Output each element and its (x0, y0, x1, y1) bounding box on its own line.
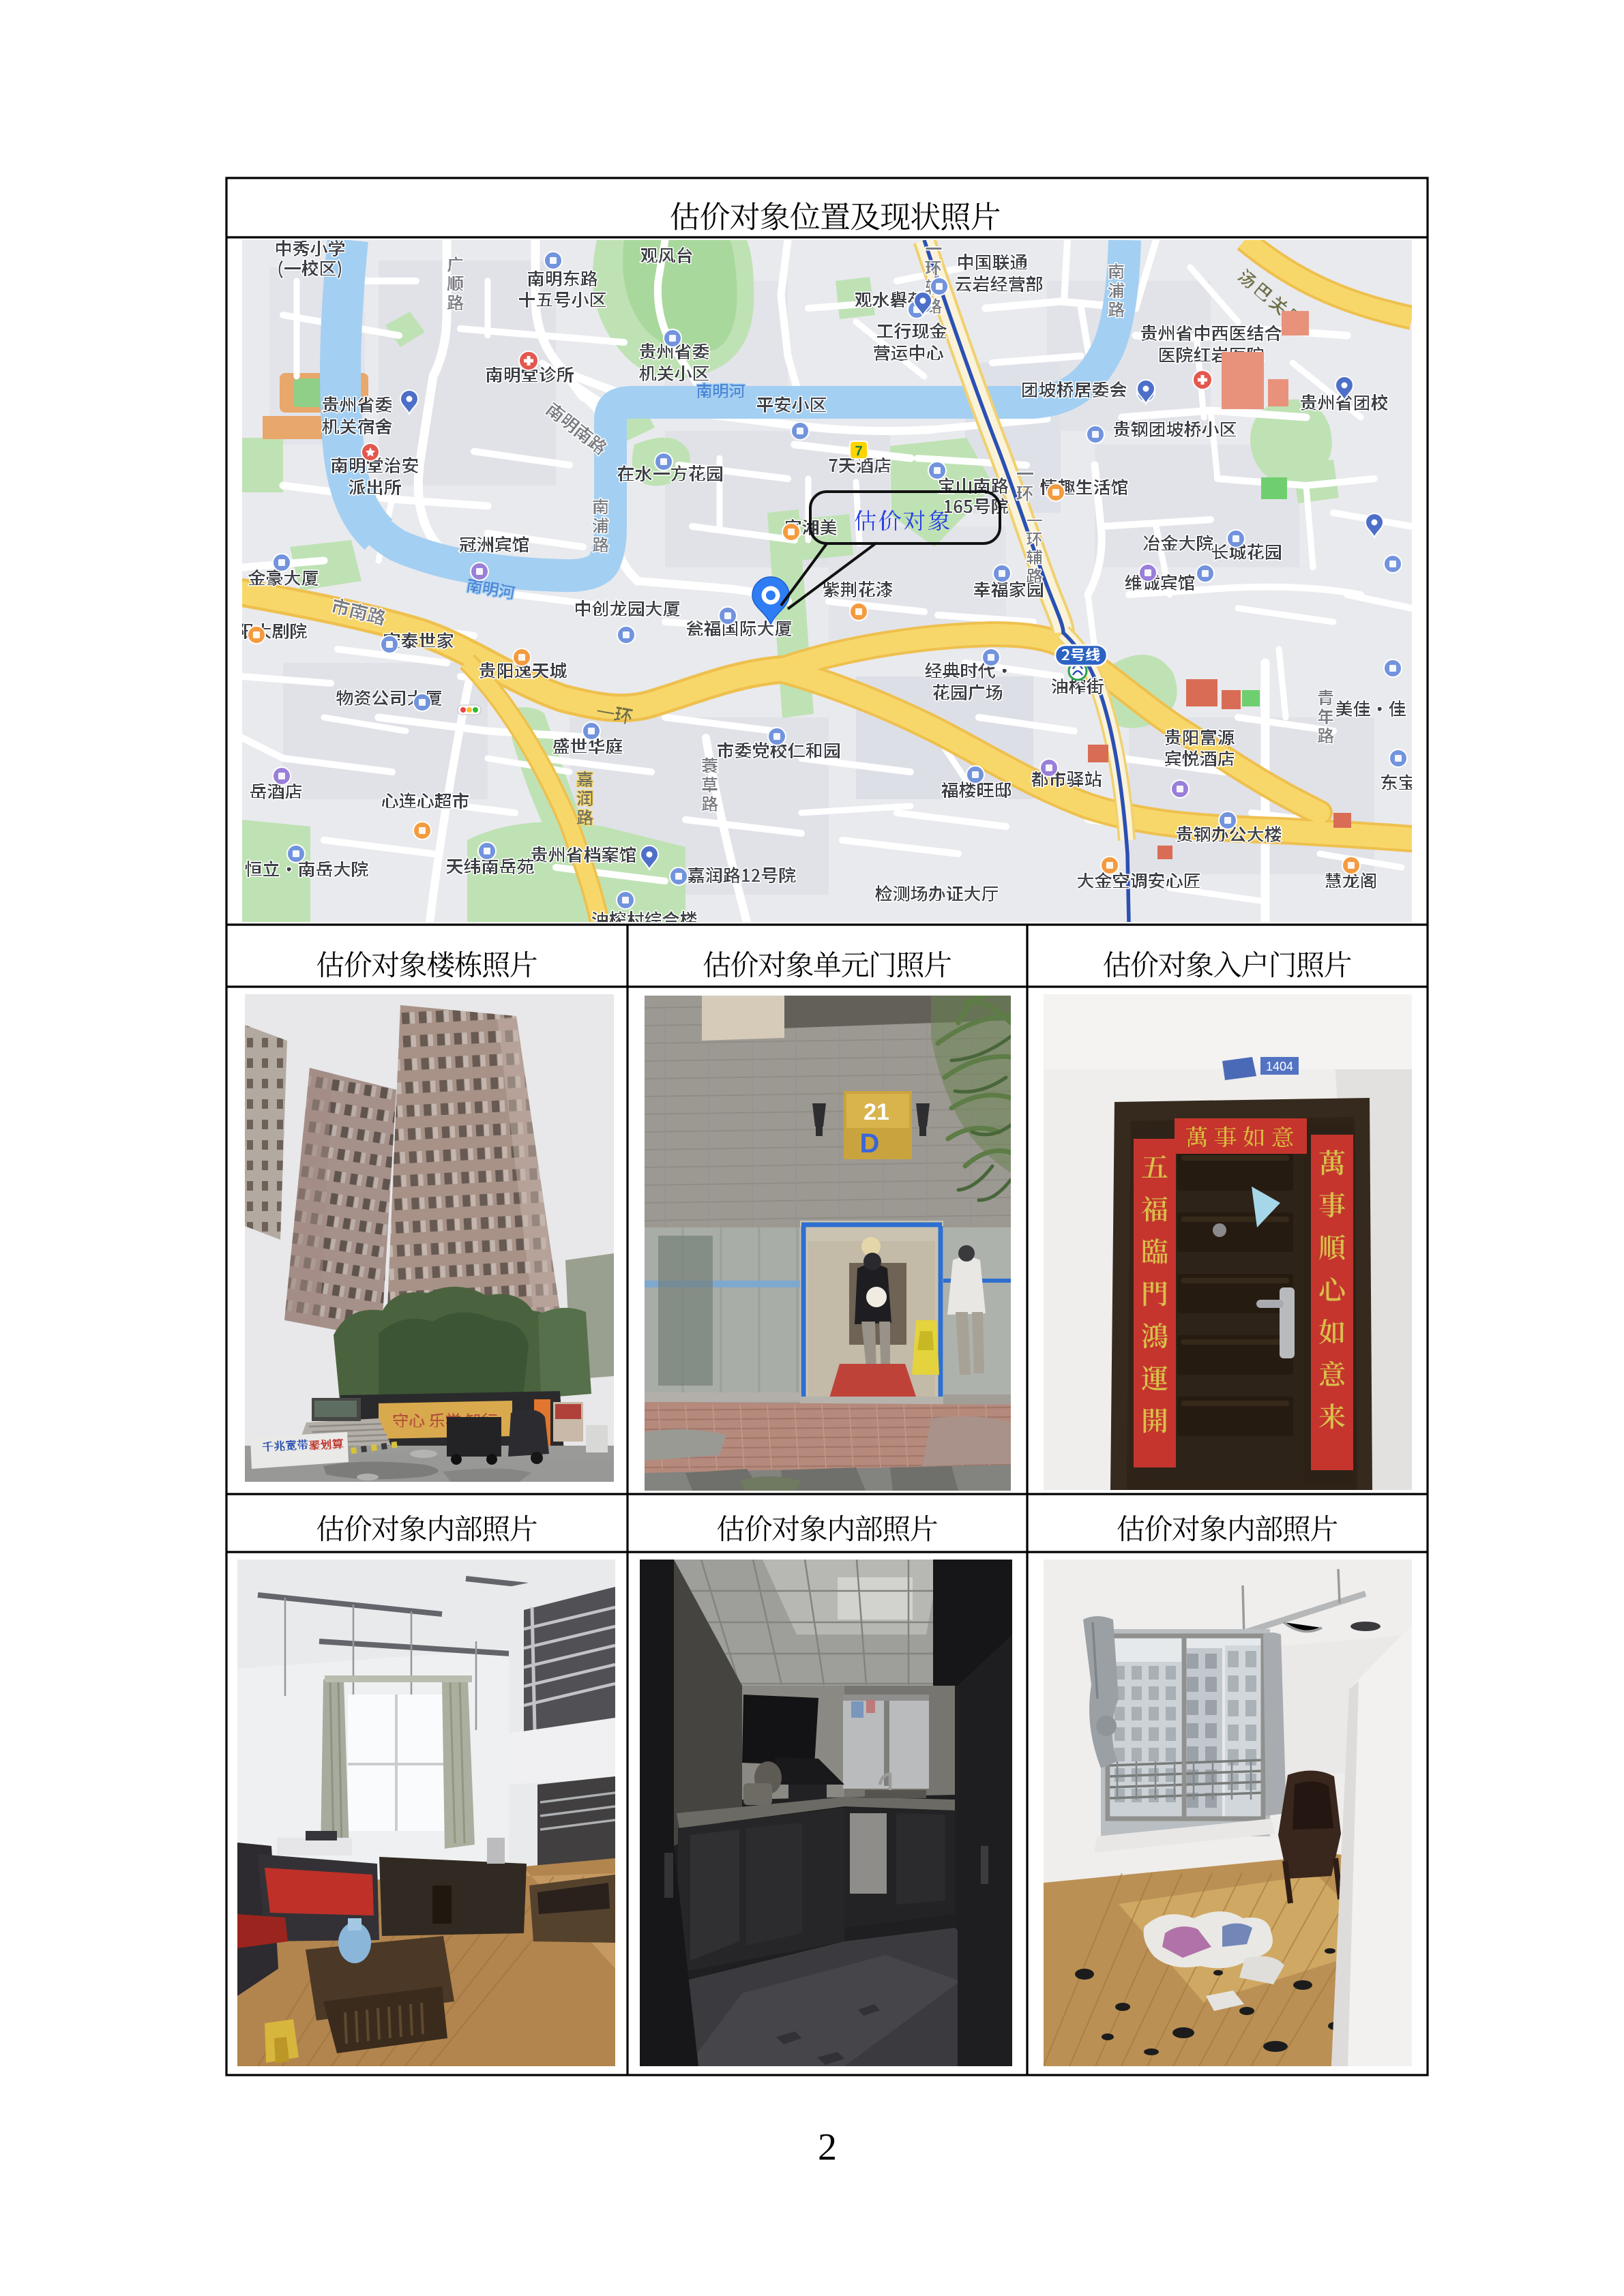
svg-text:D: D (860, 1129, 880, 1159)
svg-text:2: 2 (818, 2126, 837, 2168)
svg-text:1404: 1404 (1266, 1060, 1293, 1073)
svg-text:21: 21 (863, 1099, 889, 1125)
svg-text:7: 7 (855, 444, 862, 459)
